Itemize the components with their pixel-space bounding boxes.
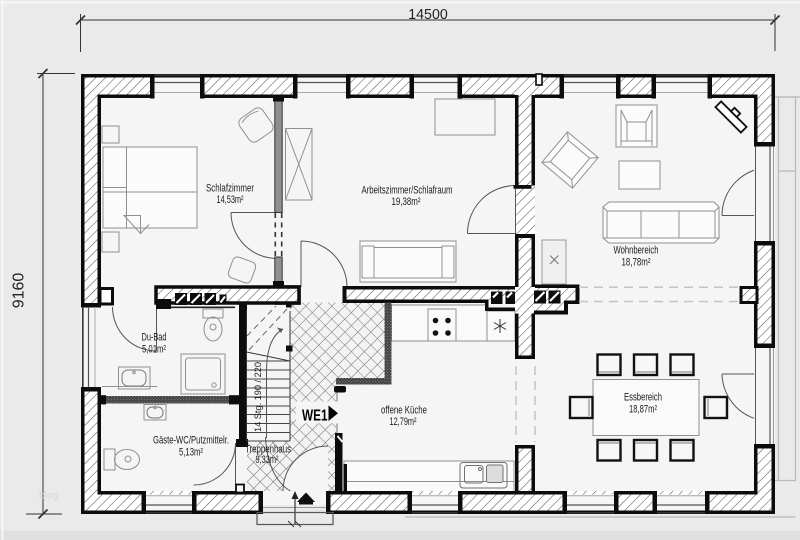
svg-text:Gäste-WC/Putzmittelr.: Gäste-WC/Putzmittelr. — [153, 435, 229, 447]
svg-text:19,38m²: 19,38m² — [392, 196, 421, 208]
svg-text:Essbereich: Essbereich — [624, 392, 662, 404]
svg-text:5,01m²: 5,01m² — [142, 344, 166, 356]
svg-text:Arbeitszimmer/Schlafraum: Arbeitszimmer/Schlafraum — [362, 185, 453, 197]
svg-text:Schlafzimmer: Schlafzimmer — [206, 183, 254, 195]
svg-text:18,78m²: 18,78m² — [622, 257, 651, 269]
svg-text:14500: 14500 — [408, 7, 448, 23]
svg-text:9160: 9160 — [11, 273, 28, 309]
svg-text:WE1: WE1 — [302, 408, 328, 425]
svg-text:offene Küche: offene Küche — [381, 405, 427, 417]
svg-text:12,79m²: 12,79m² — [390, 416, 417, 428]
svg-text:14,53m²: 14,53m² — [217, 194, 244, 206]
svg-text:9,33m²: 9,33m² — [256, 454, 279, 466]
svg-text:Wohnbereich: Wohnbereich — [614, 245, 659, 257]
svg-text:14 Stg. 190 / 220: 14 Stg. 190 / 220 — [253, 362, 263, 432]
svg-text:5,13m²: 5,13m² — [179, 447, 203, 459]
svg-text:18,87m²: 18,87m² — [629, 404, 657, 416]
svg-text:Du-Bad: Du-Bad — [142, 332, 167, 344]
svg-text:blog: blog — [39, 490, 59, 502]
